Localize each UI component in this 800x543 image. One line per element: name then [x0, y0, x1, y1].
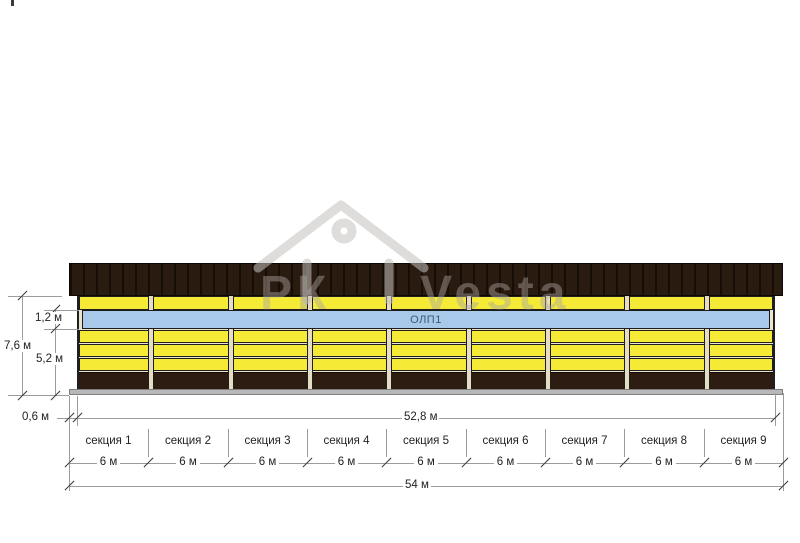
- dimension-label-lower-height: 5,2 м: [34, 353, 65, 365]
- extension-line: [783, 393, 784, 491]
- section-width-label: 6 м: [466, 456, 545, 468]
- section-label: секция 2: [148, 435, 228, 447]
- section-width-label: 6 м: [307, 456, 386, 468]
- section-width-label: 6 м: [148, 456, 228, 468]
- roof: [69, 263, 783, 296]
- wall-panel-row: [79, 330, 773, 343]
- section-width-label: 6 м: [545, 456, 624, 468]
- section-width-label: 6 м: [624, 456, 704, 468]
- wall-panel-row: [79, 344, 773, 357]
- section-label: секция 7: [545, 435, 624, 447]
- section-label: секция 8: [624, 435, 704, 447]
- section-width-label: 6 м: [228, 456, 307, 468]
- dimension-label-overhang: 0,6 м: [20, 411, 51, 423]
- extension-line: [8, 296, 62, 297]
- olp-band-label: ОЛП1: [410, 314, 442, 326]
- section-label: секция 3: [228, 435, 307, 447]
- dimension-label-band-height: 1,2 м: [33, 312, 64, 324]
- section-label: секция 9: [704, 435, 783, 447]
- section-label: секция 4: [307, 435, 386, 447]
- dimension-label-total-height: 7,6 м: [2, 340, 33, 352]
- section-width-label: 6 м: [69, 456, 148, 468]
- olp-band: ОЛП1: [82, 310, 770, 329]
- dimension-label-total-length: 54 м: [403, 479, 431, 491]
- screen-artifact: [11, 0, 14, 6]
- plinth: [79, 372, 773, 389]
- foundation-strip: [69, 389, 783, 395]
- section-label: секция 1: [69, 435, 148, 447]
- section-label: секция 6: [466, 435, 545, 447]
- elevation-drawing: ОЛП1 РК Vesta 7,6 м 1,2 м 5,2 м: [0, 0, 800, 543]
- wall-panel-row: [79, 296, 773, 310]
- dimension-label-wall-length: 52,8 м: [402, 411, 439, 423]
- extension-line: [775, 393, 776, 426]
- section-width-label: 6 м: [704, 456, 783, 468]
- section-label: секция 5: [386, 435, 466, 447]
- section-width-label: 6 м: [386, 456, 466, 468]
- wall-panel-row: [79, 358, 773, 371]
- building-wall: ОЛП1: [77, 296, 775, 389]
- extension-line: [44, 329, 79, 330]
- extension-line: [8, 395, 69, 396]
- extension-line: [77, 396, 78, 426]
- extension-line: [44, 310, 79, 311]
